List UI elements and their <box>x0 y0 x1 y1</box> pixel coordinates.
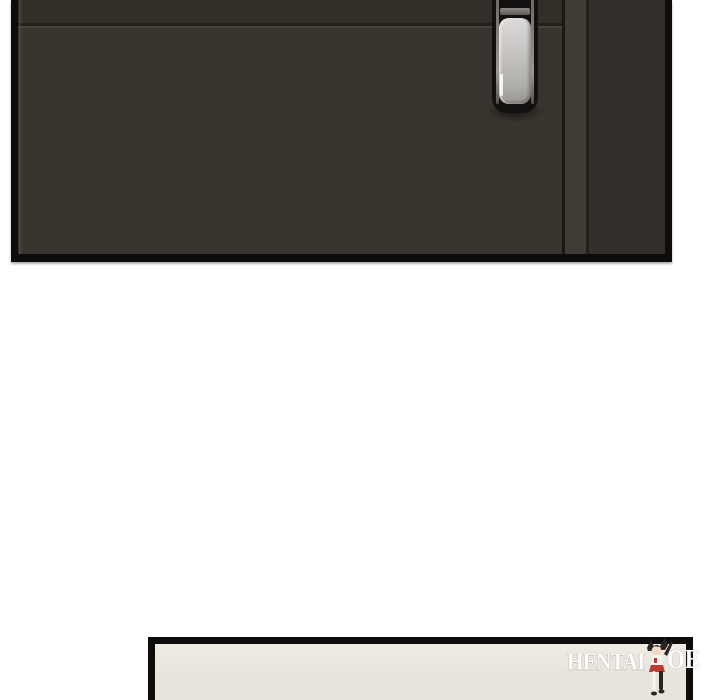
door-upper-rail <box>18 0 566 23</box>
watermark-text-left: HENTAI <box>567 650 645 674</box>
handle-recess-reflection <box>500 8 530 15</box>
door-frame-strip <box>565 0 586 254</box>
comic-page: HENTAI OE <box>0 0 720 700</box>
door-handle-plate <box>492 0 538 113</box>
door-scene-panel <box>11 0 672 262</box>
wall-right-section <box>589 0 665 254</box>
door-surface <box>18 0 665 254</box>
door-left-edge-highlight <box>19 0 23 254</box>
watermark-text-right: OE <box>667 646 700 673</box>
site-watermark: HENTAI OE <box>560 634 720 700</box>
door-groove-highlight-line <box>18 26 564 28</box>
handle-chrome-edge-right <box>531 0 534 104</box>
door-handle-lever <box>499 18 531 104</box>
handle-glint-highlight <box>500 74 503 96</box>
